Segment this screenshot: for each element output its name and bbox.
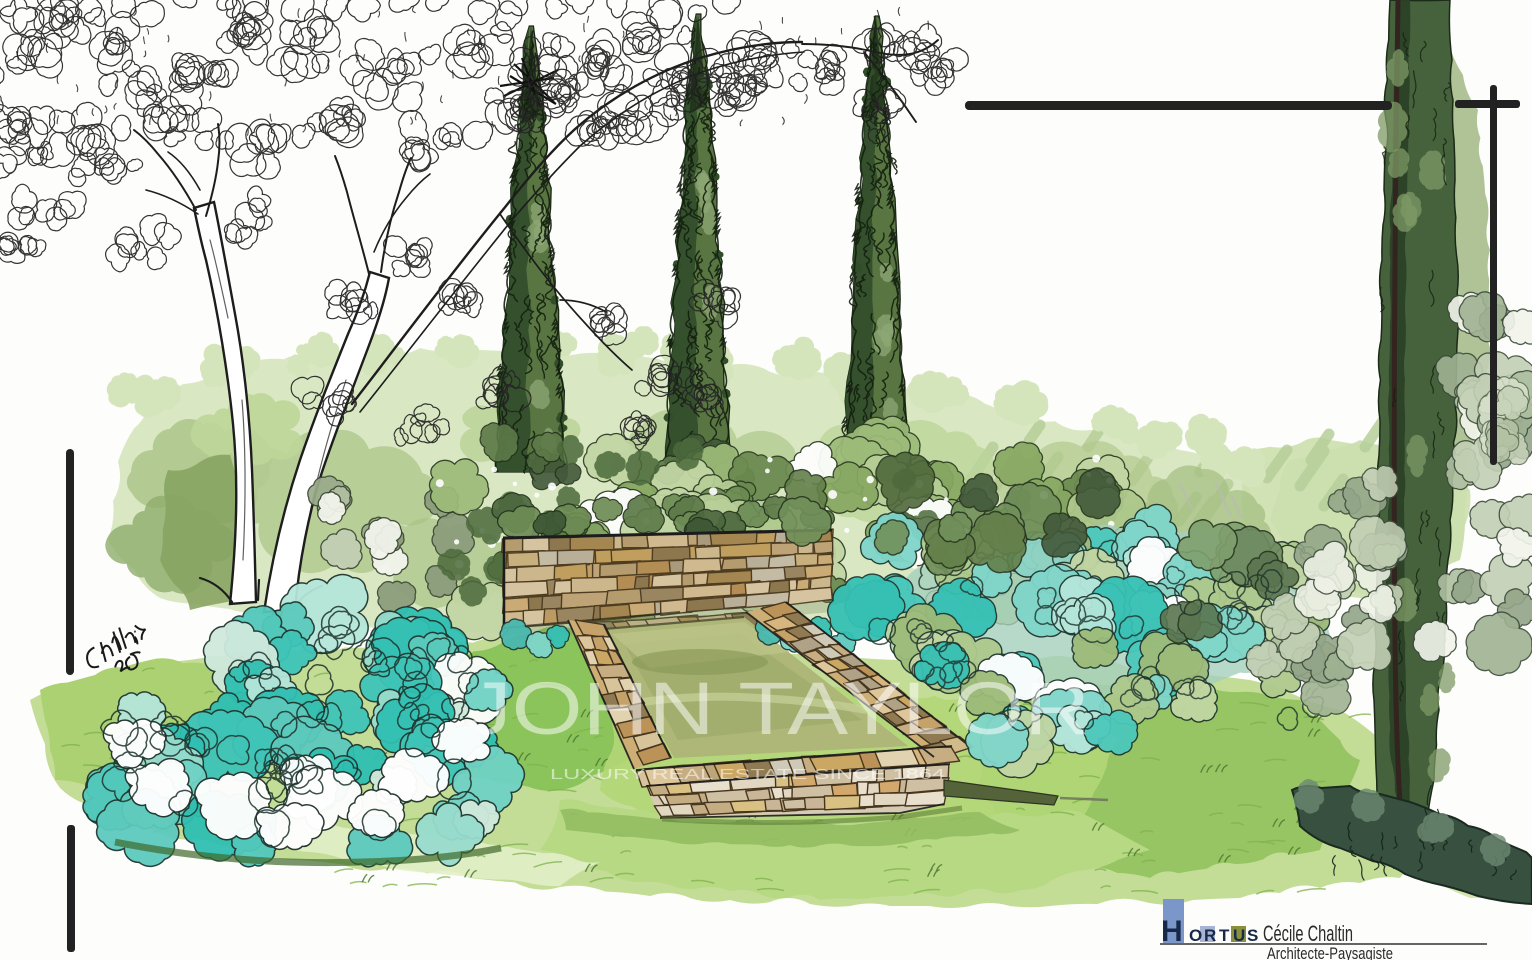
svg-text:S: S	[1247, 926, 1258, 945]
svg-text:R: R	[1204, 926, 1216, 945]
svg-text:T: T	[1219, 926, 1230, 945]
svg-text:LUXURY REAL ESTATE SINCE 1864: LUXURY REAL ESTATE SINCE 1864	[550, 766, 945, 783]
svg-text:JOHN TAYLOR: JOHN TAYLOR	[466, 667, 1090, 750]
svg-text:O: O	[1189, 926, 1202, 945]
svg-text:H: H	[1161, 915, 1183, 948]
svg-text:Architecte-Paysagiste: Architecte-Paysagiste	[1267, 944, 1393, 960]
svg-text:U: U	[1233, 926, 1245, 945]
svg-text:Cécile Chaltin: Cécile Chaltin	[1263, 921, 1353, 946]
